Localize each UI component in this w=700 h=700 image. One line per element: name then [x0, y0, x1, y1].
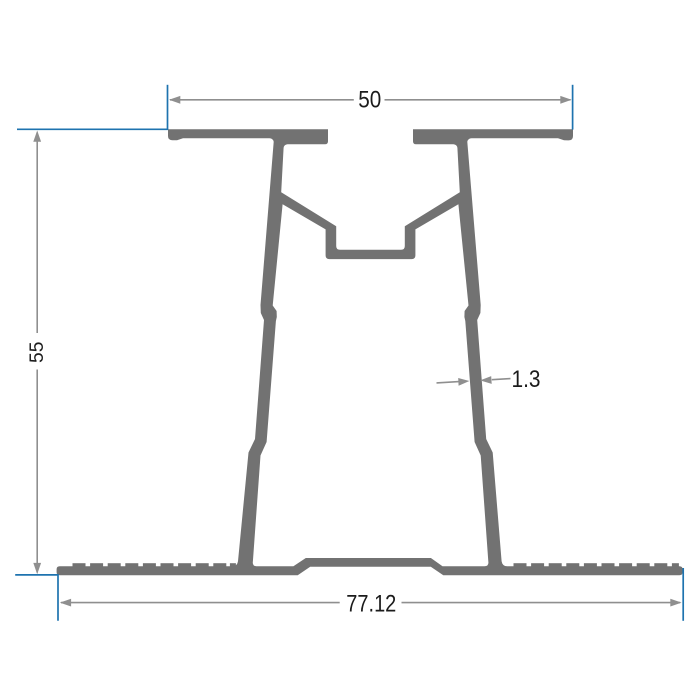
- svg-text:1.3: 1.3: [512, 366, 541, 393]
- svg-text:77.12: 77.12: [346, 590, 396, 617]
- svg-text:50: 50: [358, 87, 381, 114]
- svg-text:55: 55: [27, 341, 48, 363]
